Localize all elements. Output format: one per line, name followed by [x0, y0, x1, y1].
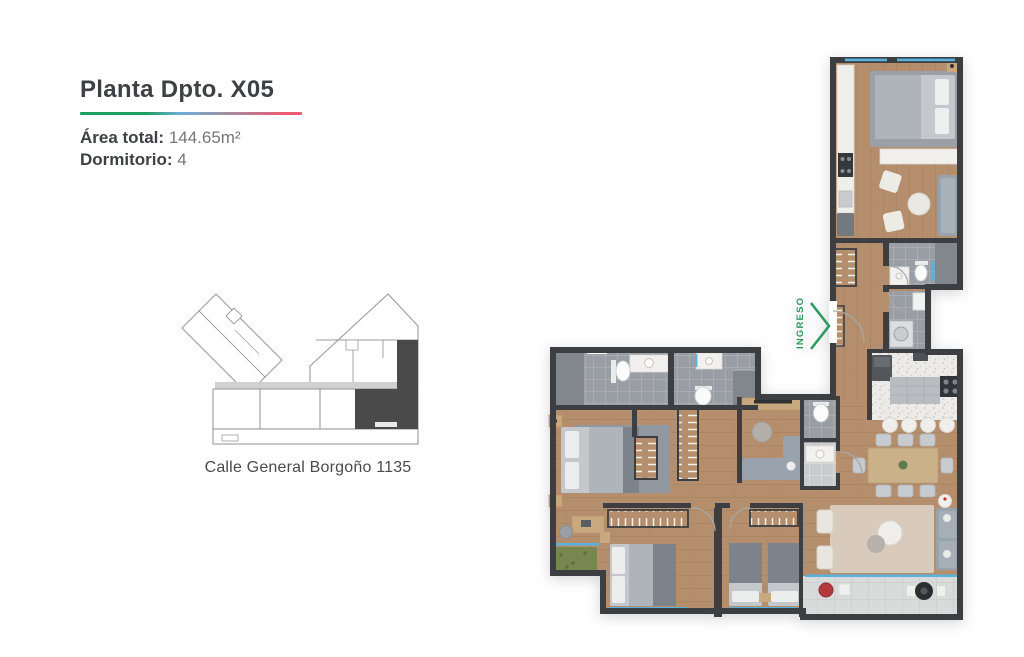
planter-grass: [553, 547, 597, 573]
shelf: [913, 293, 927, 310]
glass-accent: [695, 354, 697, 367]
grill-side-table: [937, 586, 945, 596]
window-line-top: [897, 59, 955, 62]
bed-blanket: [768, 543, 801, 583]
lamp: [950, 64, 954, 68]
door-opening: [836, 451, 840, 473]
closet: [635, 437, 657, 479]
corridor-band: [215, 382, 403, 389]
window-line-top: [845, 59, 887, 62]
pillow: [612, 576, 625, 603]
entrance-label: INGRESO: [795, 297, 806, 349]
wall-stub: [632, 407, 637, 437]
centerpiece-plant: [899, 461, 908, 470]
tv: [754, 400, 792, 404]
basin: [706, 358, 713, 365]
page-title: Planta Dpto. X05: [80, 76, 302, 104]
unit-info: Área total: 144.65m² Dormitorio: 4: [80, 127, 302, 171]
sink: [839, 191, 852, 207]
building-outline: [182, 294, 418, 444]
toilet-tank: [915, 261, 928, 265]
area-total-value: 144.65m²: [169, 128, 241, 147]
key-plan-drawing: [178, 286, 428, 446]
red-chair: [819, 583, 833, 597]
entrance-marker: INGRESO: [795, 297, 829, 349]
desk-chair: [560, 526, 573, 539]
round-table: [908, 193, 930, 215]
closet: [835, 249, 856, 286]
toilet: [915, 265, 927, 281]
pillow: [771, 591, 798, 602]
closet: [678, 407, 698, 480]
window-line: [555, 543, 599, 546]
pillow: [612, 547, 625, 574]
flowers: [943, 497, 946, 500]
entry-door-opening: [829, 301, 837, 343]
throw-pillow: [943, 514, 951, 522]
area-total-label: Área total:: [80, 128, 164, 147]
bath-divider-wall: [668, 352, 674, 405]
grill-lid: [921, 588, 928, 595]
coffee-table-low: [867, 535, 885, 553]
header: Planta Dpto. X05 Área total: 144.65m² Do…: [80, 76, 302, 171]
washer-door: [894, 327, 908, 341]
armchair: [817, 546, 833, 569]
fridge-front: [874, 357, 890, 367]
floor-plan: INGRESO: [545, 55, 975, 635]
armchair: [882, 210, 905, 233]
street-address-caption: Calle General Borgoño 1135: [178, 459, 428, 477]
bed-throw: [653, 544, 676, 606]
terrace-table: [839, 584, 850, 595]
sofa-cushion: [941, 178, 955, 233]
dormitory-line: Dormitorio: 4: [80, 149, 302, 171]
pillow: [935, 79, 949, 105]
key-plan: Calle General Borgoño 1135: [178, 286, 428, 477]
toilet: [695, 387, 711, 405]
sliding-door-glass: [805, 575, 958, 578]
throw-pillow: [943, 550, 951, 558]
toilet: [616, 361, 630, 381]
left-wing: [182, 294, 282, 394]
shower-left: [555, 352, 585, 405]
dormitory-value: 4: [177, 150, 186, 169]
accent-gradient-bar: [80, 112, 302, 115]
bed-blanket: [875, 75, 921, 139]
shower-glass: [932, 261, 934, 281]
entrance-chevron-icon: [811, 303, 829, 349]
floorplan-sheet: Planta Dpto. X05 Área total: 144.65m² Do…: [0, 0, 1024, 657]
dormitory-label: Dormitorio:: [80, 150, 173, 169]
pillow: [732, 591, 759, 602]
closet: [608, 510, 688, 527]
side-table: [939, 495, 952, 508]
bedside-stool: [759, 593, 771, 602]
cart: [837, 213, 854, 236]
throw-pillow: [787, 462, 796, 471]
island-counter: [890, 377, 940, 404]
basin: [645, 359, 654, 368]
armchair: [817, 510, 833, 533]
bed-blanket: [729, 543, 762, 583]
grill-side-table: [907, 586, 915, 596]
bedroom-two: [600, 510, 688, 610]
wing-shower: [935, 243, 960, 285]
bath-divider: [804, 438, 836, 442]
pillow: [565, 462, 579, 489]
closet: [750, 510, 798, 526]
wardrobe: [880, 149, 960, 164]
laptop: [581, 520, 591, 527]
toilet: [814, 404, 829, 422]
area-total-line: Área total: 144.65m²: [80, 127, 302, 149]
stove: [838, 153, 853, 177]
pillow: [935, 108, 949, 134]
toilet-tank: [611, 360, 616, 383]
round-table: [752, 422, 772, 442]
basin: [816, 450, 824, 458]
pillow: [565, 431, 579, 458]
floor-plan-drawing: INGRESO: [545, 55, 975, 630]
nightstand: [600, 532, 610, 543]
